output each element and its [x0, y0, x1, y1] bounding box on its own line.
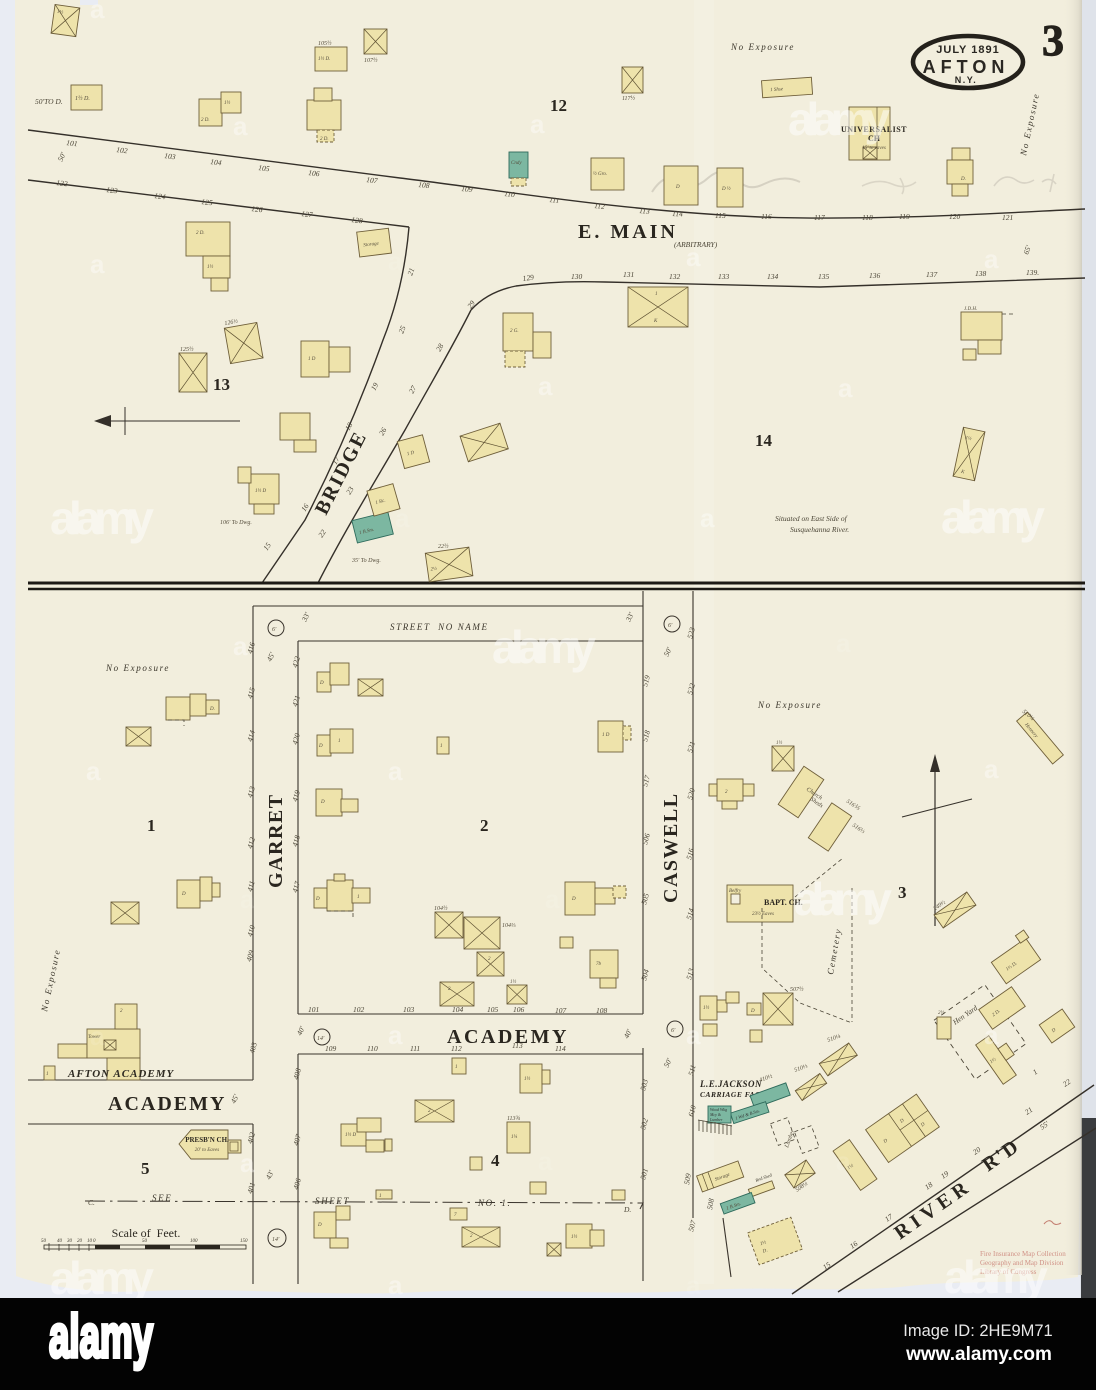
svg-text:D: D	[675, 185, 680, 190]
svg-text:a: a	[90, 249, 105, 279]
svg-text:116: 116	[761, 212, 772, 221]
svg-text:22½: 22½	[438, 543, 449, 550]
svg-text:121: 121	[1002, 213, 1013, 222]
svg-text:D.: D.	[960, 177, 966, 182]
svg-text:127: 127	[301, 209, 314, 219]
svg-text:No Exposure: No Exposure	[730, 42, 795, 52]
svg-text:Image ID: 2HE9M71: Image ID: 2HE9M71	[903, 1322, 1052, 1340]
svg-text:125: 125	[201, 197, 214, 207]
svg-text:JULY 1891: JULY 1891	[936, 44, 999, 56]
svg-text:1 D: 1 D	[602, 733, 610, 738]
svg-text:alamy: alamy	[788, 93, 890, 145]
svg-text:1½: 1½	[571, 1235, 578, 1240]
svg-text:104½: 104½	[434, 905, 448, 912]
svg-text:50'TO D.: 50'TO D.	[35, 97, 63, 106]
svg-text:CASWELL: CASWELL	[660, 792, 682, 903]
svg-text:Belfry: Belfry	[729, 889, 742, 894]
svg-text:130: 130	[571, 272, 583, 281]
svg-text:129: 129	[522, 272, 535, 283]
svg-text:2 G.: 2 G.	[510, 329, 519, 334]
svg-text:13: 13	[213, 375, 230, 394]
svg-text:104⅓: 104⅓	[502, 922, 516, 929]
svg-text:Cndy: Cndy	[511, 161, 522, 166]
svg-text:1: 1	[440, 744, 443, 749]
svg-text:1½ D.: 1½ D.	[318, 57, 330, 62]
svg-text:102: 102	[353, 1005, 365, 1014]
svg-text:136: 136	[869, 271, 881, 280]
svg-text:150: 150	[240, 1239, 248, 1244]
svg-text:109: 109	[325, 1044, 337, 1053]
svg-text:a: a	[90, 1021, 105, 1051]
svg-text:23½ Eaves: 23½ Eaves	[752, 912, 774, 917]
svg-text:122: 122	[56, 178, 69, 188]
svg-text:1½: 1½	[224, 101, 231, 106]
svg-text:113: 113	[512, 1041, 523, 1050]
svg-text:a: a	[984, 754, 999, 784]
svg-text:AFTON: AFTON	[923, 57, 1010, 77]
svg-text:1½: 1½	[510, 980, 517, 985]
svg-text:14': 14'	[272, 1236, 280, 1243]
svg-text:110: 110	[504, 189, 516, 199]
svg-text:14: 14	[755, 431, 773, 450]
svg-text:137: 137	[926, 270, 938, 279]
svg-text:123: 123	[106, 185, 119, 195]
svg-text:1: 1	[655, 292, 658, 297]
svg-text:3: 3	[898, 883, 907, 902]
svg-text:a: a	[233, 111, 248, 141]
svg-text:113: 113	[639, 206, 651, 216]
svg-text:D.: D.	[209, 707, 215, 712]
svg-text:1½: 1½	[776, 741, 783, 746]
svg-text:105: 105	[258, 163, 271, 173]
svg-text:a: a	[233, 631, 248, 661]
svg-text:105½: 105½	[318, 40, 332, 47]
svg-text:www.alamy.com: www.alamy.com	[905, 1344, 1052, 1365]
svg-text:alamy: alamy	[944, 1251, 1048, 1303]
svg-text:D: D	[320, 800, 325, 805]
svg-text:STREET NO NAME: STREET NO NAME	[390, 622, 489, 632]
svg-text:J.D.H.: J.D.H.	[964, 307, 977, 312]
svg-text:alamy: alamy	[492, 621, 596, 673]
svg-text:124: 124	[154, 191, 167, 201]
svg-text:½ Gro.: ½ Gro.	[593, 172, 607, 177]
svg-text:Lumber: Lumber	[709, 1117, 723, 1122]
svg-text:SEE: SEE	[152, 1193, 172, 1203]
svg-text:a: a	[240, 1148, 255, 1178]
svg-text:102: 102	[116, 145, 129, 155]
svg-text:4: 4	[491, 1151, 500, 1170]
svg-text:100: 100	[190, 1239, 198, 1244]
svg-text:2 D.: 2 D.	[196, 231, 205, 236]
svg-text:D: D	[315, 897, 320, 902]
svg-text:103: 103	[164, 151, 177, 161]
svg-text:SHEET: SHEET	[315, 1196, 350, 1206]
svg-text:30: 30	[67, 1239, 73, 1244]
svg-text:103: 103	[403, 1005, 415, 1014]
svg-text:117: 117	[814, 213, 825, 222]
svg-text:2½: 2½	[938, 1011, 945, 1016]
svg-text:20: 20	[77, 1239, 83, 1244]
svg-text:D: D	[181, 892, 186, 897]
svg-text:118: 118	[862, 213, 873, 222]
svg-text:E. MAIN: E. MAIN	[578, 221, 678, 243]
svg-text:1½ D.: 1½ D.	[75, 95, 90, 102]
svg-text:Scale of Feet.: Scale of Feet.	[112, 1226, 181, 1240]
svg-text:131: 131	[623, 270, 634, 279]
svg-text:134: 134	[767, 272, 779, 281]
svg-text:ACADEMY: ACADEMY	[108, 1093, 226, 1115]
svg-text:126: 126	[251, 204, 264, 214]
svg-text:C.: C.	[88, 1198, 95, 1207]
svg-text:113¾: 113¾	[507, 1116, 521, 1122]
svg-text:ACADEMY: ACADEMY	[447, 1026, 569, 1048]
svg-text:3: 3	[1042, 16, 1064, 65]
svg-text:D.: D.	[623, 1205, 631, 1214]
svg-text:1: 1	[357, 895, 360, 900]
svg-text:a: a	[86, 756, 101, 786]
svg-text:D: D	[319, 681, 324, 686]
svg-text:1: 1	[46, 1072, 49, 1077]
svg-text:125½: 125½	[180, 346, 194, 353]
svg-text:1½ D: 1½ D	[345, 1133, 357, 1138]
svg-text:115: 115	[715, 211, 726, 220]
svg-text:6': 6'	[272, 627, 277, 633]
svg-text:50: 50	[142, 1239, 148, 1244]
svg-text:6': 6'	[671, 1028, 676, 1034]
svg-text:alamy: alamy	[49, 1303, 153, 1370]
svg-text:AFTON ACADEMY: AFTON ACADEMY	[67, 1068, 174, 1080]
svg-text:101: 101	[66, 138, 78, 148]
svg-text:104: 104	[210, 157, 223, 167]
svg-text:20' to Eaves: 20' to Eaves	[195, 1148, 219, 1153]
svg-text:507½: 507½	[790, 986, 804, 993]
svg-text:106: 106	[308, 168, 321, 178]
svg-text:112: 112	[451, 1044, 462, 1053]
svg-text:1½ D: 1½ D	[255, 489, 267, 494]
svg-text:112: 112	[594, 201, 606, 211]
svg-text:GARRET: GARRET	[265, 793, 287, 888]
svg-text:1½: 1½	[703, 1006, 710, 1011]
svg-text:D: D	[571, 897, 576, 902]
svg-text:a: a	[836, 628, 851, 658]
svg-text:a: a	[388, 756, 403, 786]
svg-text:35' To Dwg.: 35' To Dwg.	[351, 558, 381, 564]
svg-text:2 D.: 2 D.	[201, 118, 210, 123]
svg-text:alamy: alamy	[50, 492, 154, 544]
svg-text:Susquehanna River.: Susquehanna River.	[790, 525, 849, 534]
svg-text:a: a	[700, 503, 715, 533]
svg-text:107: 107	[555, 1006, 567, 1015]
svg-text:110: 110	[367, 1044, 378, 1053]
svg-text:119: 119	[899, 212, 910, 221]
svg-text:1: 1	[455, 1065, 458, 1070]
svg-text:a: a	[388, 246, 403, 276]
svg-text:106: 106	[513, 1005, 525, 1014]
svg-text:No Exposure: No Exposure	[105, 663, 170, 673]
svg-text:2½: 2½	[430, 567, 437, 573]
svg-text:a: a	[984, 1020, 999, 1050]
svg-text:a: a	[90, 0, 105, 24]
svg-text:No Exposure: No Exposure	[757, 700, 822, 710]
svg-text:111: 111	[549, 195, 560, 205]
svg-text:132: 132	[669, 272, 681, 281]
svg-text:Situated on East Side of: Situated on East Side of	[775, 514, 848, 523]
svg-text:120: 120	[949, 212, 961, 221]
svg-text:D ½: D ½	[721, 187, 731, 192]
svg-text:a: a	[538, 1146, 553, 1176]
svg-text:114: 114	[555, 1044, 566, 1053]
svg-text:5: 5	[141, 1159, 150, 1178]
svg-text:50: 50	[41, 1239, 47, 1244]
svg-text:1½: 1½	[207, 265, 214, 270]
svg-text:6': 6'	[668, 623, 673, 629]
svg-text:2 D.: 2 D.	[320, 137, 329, 142]
svg-text:1: 1	[338, 739, 341, 744]
svg-text:a: a	[545, 884, 560, 914]
svg-text:10: 10	[87, 1239, 93, 1244]
svg-text:a: a	[240, 884, 255, 914]
svg-text:111: 111	[410, 1044, 420, 1053]
svg-text:1: 1	[379, 1194, 382, 1199]
svg-text:K: K	[653, 319, 658, 324]
svg-text:114: 114	[672, 209, 683, 218]
svg-text:105: 105	[487, 1005, 499, 1014]
svg-text:L.E.JACKSON: L.E.JACKSON	[699, 1079, 762, 1089]
svg-text:7b: 7b	[596, 962, 602, 967]
svg-text:a: a	[530, 109, 545, 139]
svg-text:a: a	[395, 503, 410, 533]
svg-text:106' To Dwg.: 106' To Dwg.	[220, 520, 252, 526]
svg-text:139.: 139.	[1026, 268, 1039, 277]
svg-text:1 Shse: 1 Shse	[770, 87, 784, 93]
svg-text:N.Y.: N.Y.	[955, 75, 978, 85]
svg-text:15' to eaves: 15' to eaves	[862, 146, 886, 151]
svg-text:117½: 117½	[622, 95, 636, 102]
svg-text:a: a	[686, 1020, 701, 1050]
svg-text:a: a	[838, 373, 853, 403]
svg-text:12: 12	[550, 96, 567, 115]
svg-text:a: a	[836, 1146, 851, 1176]
svg-text:108: 108	[596, 1006, 608, 1015]
svg-text:14': 14'	[317, 1035, 325, 1042]
svg-text:alamy: alamy	[941, 491, 1045, 543]
svg-text:a: a	[984, 244, 999, 274]
svg-text:a: a	[686, 1270, 701, 1300]
svg-text:40: 40	[57, 1239, 63, 1244]
svg-text:1 D: 1 D	[308, 357, 316, 362]
svg-text:1: 1	[147, 816, 156, 835]
svg-text:alamy: alamy	[50, 1252, 154, 1304]
svg-text:2: 2	[480, 816, 489, 835]
svg-text:D: D	[317, 1223, 322, 1228]
svg-text:a: a	[538, 371, 553, 401]
svg-text:D: D	[750, 1009, 755, 1014]
svg-text:a: a	[388, 1020, 403, 1050]
svg-text:1½: 1½	[57, 10, 64, 16]
svg-text:109: 109	[461, 184, 473, 194]
svg-text:133: 133	[718, 272, 730, 281]
svg-text:107: 107	[366, 175, 379, 185]
svg-text:D: D	[318, 744, 323, 749]
svg-text:135: 135	[818, 272, 830, 281]
svg-text:a: a	[686, 242, 701, 272]
svg-text:alamy: alamy	[794, 873, 892, 925]
svg-text:101: 101	[308, 1005, 319, 1014]
svg-text:a: a	[388, 1270, 403, 1300]
svg-text:1½: 1½	[524, 1077, 531, 1082]
svg-text:PRESB'N CH.: PRESB'N CH.	[185, 1136, 229, 1144]
svg-text:128: 128	[351, 215, 364, 225]
svg-text:NO. 1.: NO. 1.	[477, 1198, 511, 1208]
svg-text:1¼: 1¼	[511, 1135, 518, 1140]
svg-text:107½: 107½	[364, 57, 378, 64]
svg-text:108: 108	[418, 180, 430, 190]
